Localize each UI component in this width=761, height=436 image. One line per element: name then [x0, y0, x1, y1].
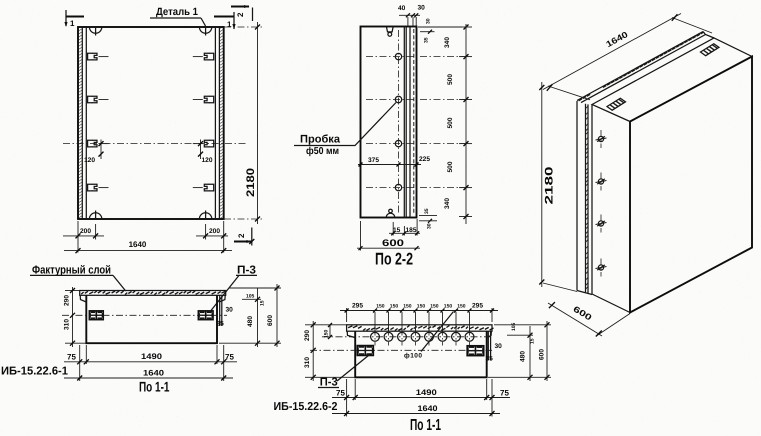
svg-text:600: 600 [267, 315, 274, 326]
svg-text:75: 75 [225, 353, 234, 362]
svg-text:35: 35 [424, 208, 430, 214]
svg-text:П-3: П-3 [237, 265, 256, 277]
svg-text:75: 75 [67, 353, 76, 362]
svg-text:15: 15 [393, 227, 401, 234]
svg-text:П-3: П-3 [320, 376, 338, 388]
svg-text:375: 375 [368, 157, 379, 164]
svg-text:30: 30 [427, 223, 433, 229]
svg-text:150: 150 [324, 329, 330, 338]
svg-text:35: 35 [424, 37, 430, 43]
svg-text:480: 480 [247, 316, 254, 327]
svg-text:225: 225 [419, 156, 430, 163]
svg-text:1640: 1640 [129, 240, 147, 249]
svg-text:По 1-1: По 1-1 [139, 379, 170, 395]
svg-text:185: 185 [406, 227, 417, 234]
svg-text:30: 30 [426, 18, 432, 24]
svg-text:1490: 1490 [141, 352, 163, 361]
svg-text:1640: 1640 [143, 369, 165, 378]
svg-text:340: 340 [444, 37, 451, 48]
svg-text:ф100: ф100 [404, 353, 423, 360]
svg-text:150: 150 [430, 304, 439, 310]
svg-text:2: 2 [236, 12, 245, 17]
svg-text:30: 30 [226, 307, 234, 314]
svg-text:30: 30 [495, 343, 503, 350]
svg-text:ИБ-15.22.6-1: ИБ-15.22.6-1 [1, 366, 69, 378]
svg-text:500: 500 [447, 161, 454, 172]
svg-text:ф50 мм: ф50 мм [306, 146, 339, 157]
svg-text:15: 15 [260, 300, 266, 306]
svg-text:1: 1 [70, 19, 75, 28]
svg-text:2: 2 [237, 233, 246, 238]
svg-text:120: 120 [84, 157, 95, 164]
svg-text:Пробка: Пробка [300, 133, 341, 145]
svg-text:500: 500 [447, 117, 454, 128]
svg-text:40: 40 [398, 5, 406, 12]
svg-text:200: 200 [209, 228, 220, 235]
svg-text:150: 150 [417, 304, 426, 310]
svg-text:1490: 1490 [416, 388, 438, 397]
svg-text:Деталь 1: Деталь 1 [156, 6, 198, 18]
svg-text:150: 150 [457, 304, 466, 310]
svg-text:30: 30 [418, 5, 426, 12]
svg-text:150: 150 [376, 304, 385, 310]
svg-text:310: 310 [64, 319, 71, 330]
svg-text:75: 75 [500, 389, 509, 398]
svg-text:120: 120 [202, 157, 213, 164]
svg-text:2180: 2180 [544, 167, 556, 205]
svg-text:150: 150 [390, 304, 399, 310]
svg-text:295: 295 [472, 303, 483, 310]
svg-text:1: 1 [227, 20, 232, 29]
svg-text:35: 35 [486, 356, 494, 363]
svg-text:150: 150 [444, 304, 453, 310]
svg-text:200: 200 [80, 228, 91, 235]
svg-text:295: 295 [352, 303, 363, 310]
svg-text:1640: 1640 [418, 404, 439, 413]
svg-text:480: 480 [520, 351, 527, 362]
svg-text:Фактурный слой: Фактурный слой [32, 264, 111, 276]
svg-text:По 2-2: По 2-2 [375, 250, 413, 269]
svg-text:340: 340 [444, 198, 451, 209]
svg-text:600: 600 [539, 349, 546, 360]
svg-text:2180: 2180 [245, 168, 257, 197]
svg-text:500: 500 [447, 74, 454, 85]
svg-text:310: 310 [304, 357, 311, 368]
svg-text:ИБ-15.22.6-2: ИБ-15.22.6-2 [274, 401, 338, 413]
svg-text:150: 150 [403, 304, 412, 310]
svg-text:35: 35 [217, 321, 225, 328]
svg-text:290: 290 [64, 295, 71, 306]
svg-text:75: 75 [336, 389, 345, 398]
svg-text:По 1-1: По 1-1 [410, 417, 441, 434]
svg-text:290: 290 [304, 330, 311, 341]
svg-text:600: 600 [382, 238, 404, 249]
svg-text:105: 105 [246, 294, 255, 300]
svg-text:15: 15 [530, 338, 536, 344]
svg-text:105: 105 [511, 322, 517, 331]
